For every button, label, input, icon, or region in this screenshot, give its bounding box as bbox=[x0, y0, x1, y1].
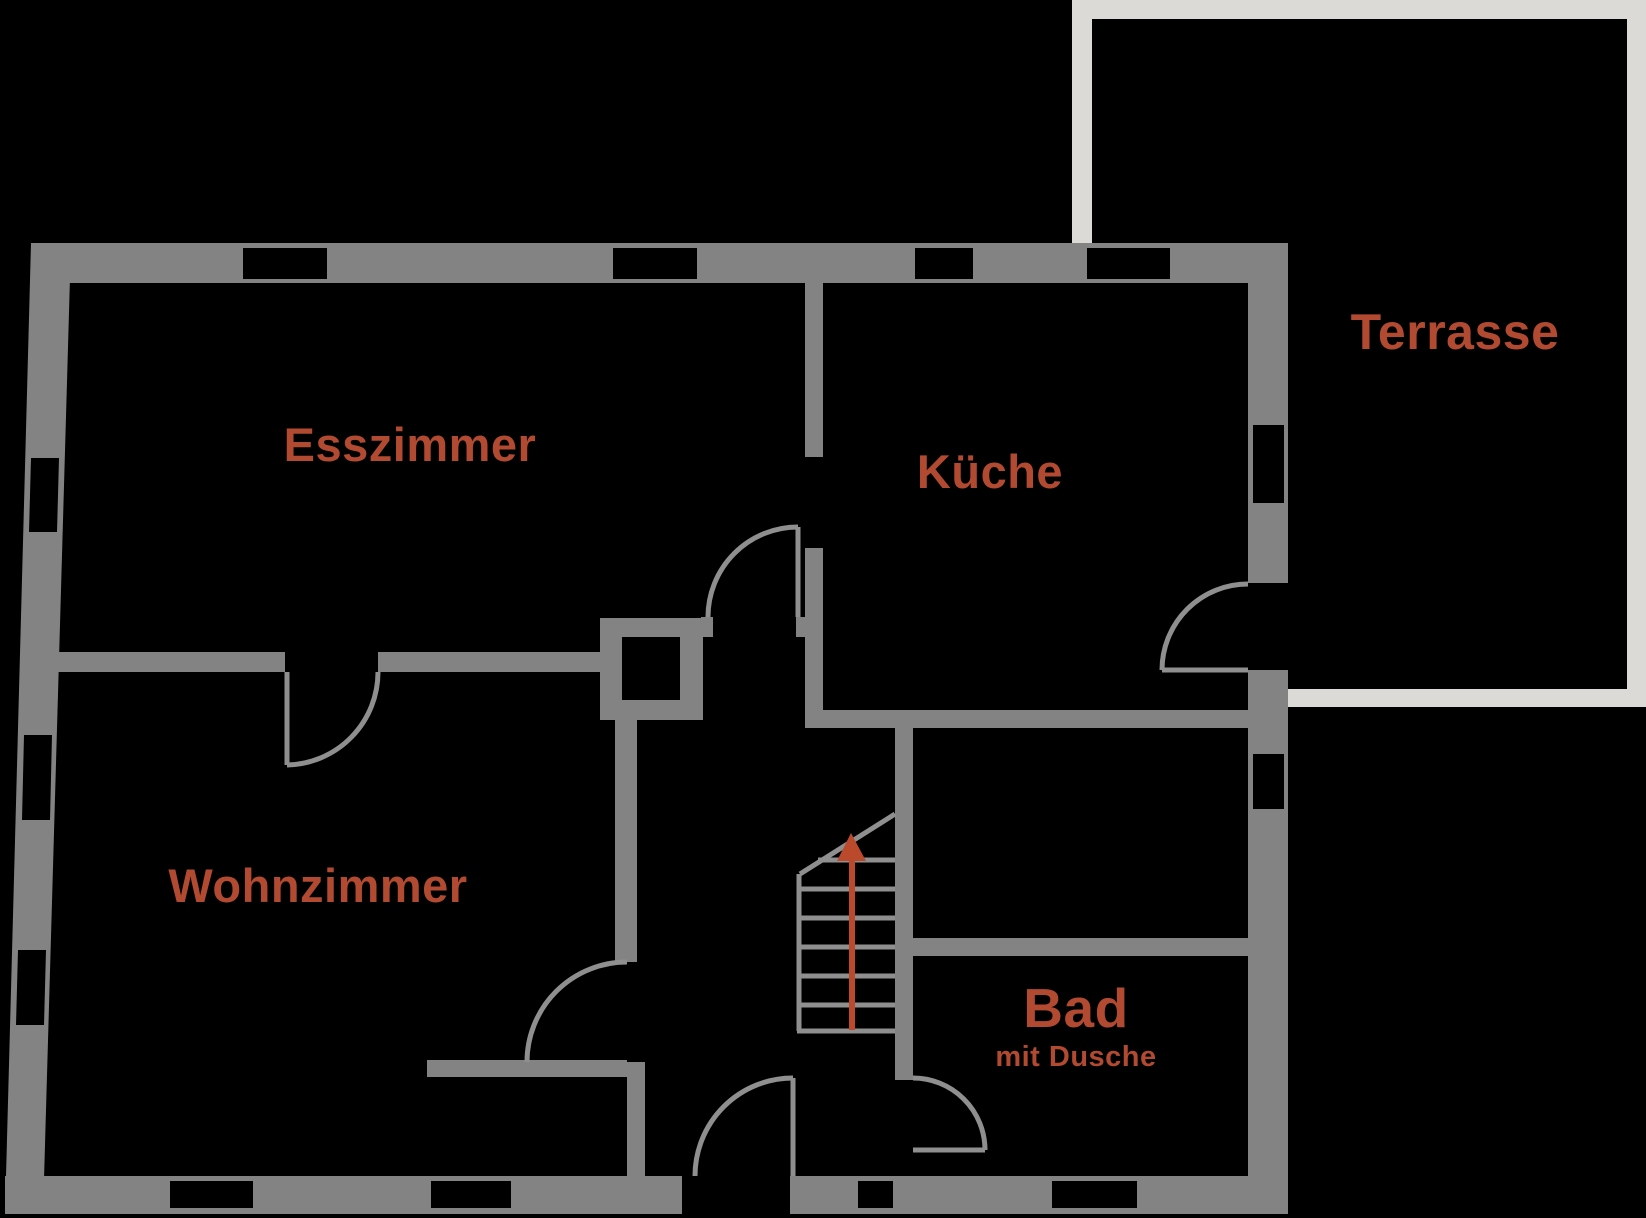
floor-plan-canvas: Esszimmer Küche Terrasse Wohnzimmer Bad … bbox=[0, 0, 1646, 1218]
label-wohnzimmer: Wohnzimmer bbox=[168, 859, 467, 912]
wall-wohnzimmer-east-upper bbox=[615, 720, 637, 962]
wall-esszimmer-wohnzimmer-left bbox=[56, 652, 285, 672]
window-left-2 bbox=[22, 735, 52, 820]
terrace-border-bottom bbox=[1288, 689, 1646, 707]
wall-hall-top-stub bbox=[701, 617, 713, 637]
wall-bad-north bbox=[913, 938, 1248, 956]
wall-right-middle bbox=[1248, 670, 1288, 1214]
terrace-border-left bbox=[1072, 0, 1092, 245]
wall-vestibule-stub bbox=[427, 1060, 627, 1077]
wall-kueche-west-upper bbox=[805, 283, 823, 457]
window-top-1 bbox=[243, 248, 327, 279]
window-top-2 bbox=[613, 248, 697, 279]
wall-wohnzimmer-east-lower bbox=[627, 1062, 645, 1176]
wall-bad-west bbox=[895, 728, 913, 1080]
wall-esszimmer-wohnzimmer-right bbox=[378, 652, 602, 672]
label-esszimmer: Esszimmer bbox=[284, 418, 537, 471]
window-bottom-4 bbox=[1052, 1181, 1137, 1208]
window-top-4 bbox=[1087, 248, 1170, 279]
window-right-1 bbox=[1253, 425, 1284, 503]
window-left-3 bbox=[16, 950, 46, 1025]
wall-kueche-south bbox=[805, 710, 1248, 728]
terrace-border-top bbox=[1072, 0, 1646, 19]
wall-kueche-west-lower bbox=[805, 548, 823, 728]
window-bottom-3 bbox=[858, 1181, 893, 1208]
label-terrasse: Terrasse bbox=[1351, 304, 1560, 360]
floor-plan-svg: Esszimmer Küche Terrasse Wohnzimmer Bad … bbox=[0, 0, 1646, 1218]
window-bottom-2 bbox=[431, 1181, 511, 1208]
window-right-2 bbox=[1253, 754, 1284, 809]
window-bottom-1 bbox=[170, 1181, 253, 1208]
window-top-3 bbox=[915, 248, 973, 279]
window-left-1 bbox=[29, 458, 59, 532]
label-bad: Bad bbox=[1023, 977, 1128, 1039]
terrace-door-opening bbox=[1248, 583, 1288, 670]
wall-right-upper bbox=[1248, 243, 1288, 583]
wall-hall-top-jamb bbox=[796, 617, 805, 637]
label-bad-sub: mit Dusche bbox=[995, 1041, 1156, 1073]
terrace-border-right bbox=[1627, 0, 1646, 707]
arrow-shaft bbox=[849, 856, 855, 1030]
wall-bottom-left bbox=[5, 1176, 682, 1214]
label-kueche: Küche bbox=[917, 445, 1063, 498]
